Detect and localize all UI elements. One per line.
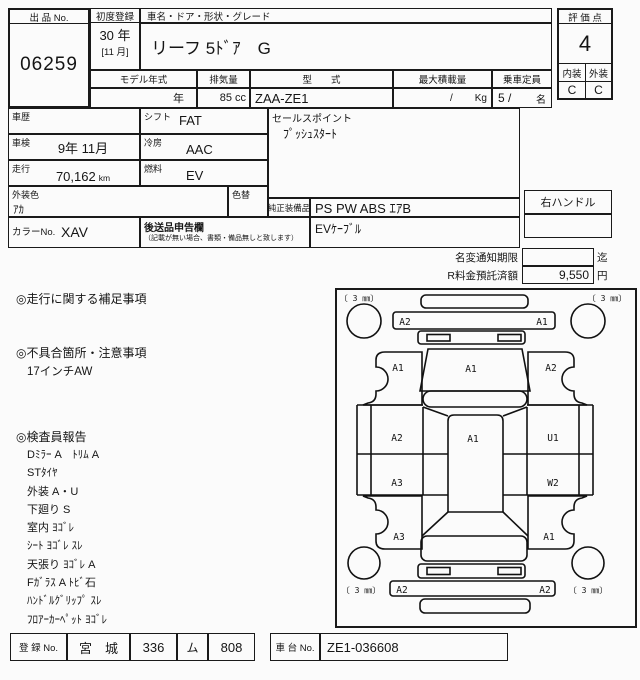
equipment2-value: EVｹｰﾌﾞﾙ	[310, 217, 520, 248]
fender-front-right-mark: A2	[545, 363, 556, 374]
first-registration-box: 初度登録 30 年 [11 月]	[90, 8, 140, 70]
displacement-value: 85 cc	[197, 88, 250, 108]
lot-number: 06259	[10, 24, 88, 106]
fuel-label: 燃料	[144, 162, 162, 175]
inspector-line: 下廻り S	[27, 501, 327, 519]
ac-cell: 冷房 AAC	[140, 134, 268, 160]
inspector-line: 天張り ﾖｺﾞﾚ A	[27, 556, 327, 574]
later-items-cell: 後送品申告欄 （記載が無い場合、書類・備品無しと致します）	[140, 217, 310, 248]
damage-diagram: 〔 3 ㎜〕 〔 3 ㎜〕 〔 3 ㎜〕 〔 3 ㎜〕 A2 A1 A1 A1	[335, 288, 637, 628]
rear-bumper-right-mark: A2	[539, 585, 550, 596]
damage-diagram-svg: 〔 3 ㎜〕 〔 3 ㎜〕 〔 3 ㎜〕 〔 3 ㎜〕 A2 A1 A1 A1	[337, 290, 635, 626]
mileage-value: 70,162	[56, 169, 96, 184]
fender-rear-right-mark: A1	[543, 532, 555, 543]
shift-cell: シフト FAT	[140, 108, 268, 134]
capacity-unit: 名	[536, 91, 546, 106]
headlight-left	[427, 335, 450, 342]
inspector-line: 外装 A・U	[27, 483, 327, 501]
rear-hatch-pillars	[422, 512, 528, 536]
max-load-label: 最大積載量	[393, 70, 492, 88]
tail-light-strip	[418, 564, 525, 578]
color-change-cell: 色替	[228, 186, 268, 217]
model-code-label: 型 式	[250, 70, 393, 88]
name-change-value-box	[522, 248, 594, 266]
defects-title: ◎不具合箇所・注意事項	[16, 344, 146, 361]
fender-rear-right	[528, 496, 587, 549]
interior-grade: C	[559, 82, 586, 98]
name-change-suffix: 迄	[597, 250, 608, 265]
wheel-front-left	[347, 304, 381, 338]
inspector-title: ◎検査員報告	[16, 428, 86, 445]
score-value: 4	[559, 24, 611, 64]
fender-rear-left-mark: A3	[393, 532, 404, 543]
defect-item: 17インチAW	[27, 363, 92, 379]
wheel-rear-right	[572, 547, 604, 579]
shift-value: FAT	[179, 113, 202, 128]
front-bumper-left-mark: A2	[399, 317, 410, 328]
inspector-line: 室内 ﾖｺﾞﾚ	[27, 519, 327, 537]
roof-panel	[448, 415, 503, 512]
inspection-cell: 車検 9年 11月	[8, 134, 140, 160]
sales-point-label: セールスポイント	[272, 110, 352, 125]
interior-label: 内装	[559, 64, 586, 82]
registration-class: 336	[130, 633, 177, 661]
color-no-value: XAV	[61, 224, 88, 240]
lot-number-box: 出 品 No. 06259	[8, 8, 90, 108]
tire-mark-rear-left: 〔 3 ㎜〕	[342, 586, 380, 595]
door-left-rear-mark: A3	[391, 478, 402, 489]
inspector-line: STﾀｲﾔ	[27, 464, 327, 482]
first-registration-label: 初度登録	[91, 9, 139, 23]
later-items-note: （記載が無い場合、書類・備品無しと致します）	[144, 233, 298, 243]
fuel-value: EV	[186, 168, 203, 183]
hood-mark: A1	[465, 364, 477, 375]
recycle-fee-value-box: 9,550	[522, 266, 594, 284]
color-no-label: カラーNo.	[12, 224, 55, 238]
registration-number: 808	[208, 633, 255, 661]
score-box: 評 価 点 4 内装 外装 C C	[557, 8, 613, 100]
shift-label: シフト	[144, 110, 171, 123]
fender-front-left	[363, 352, 422, 405]
recycle-fee-suffix: 円	[597, 268, 608, 283]
exterior-label: 外装	[586, 64, 611, 82]
front-bumper-top-strip	[421, 295, 528, 308]
model-year-value: 年	[90, 88, 197, 108]
front-bumper-right-mark: A1	[536, 317, 548, 328]
wheel-front-right	[571, 304, 605, 338]
history-cell: 車歴	[8, 108, 140, 134]
color-no-cell: カラーNo. XAV	[8, 217, 140, 248]
car-name: リーフ 5ﾄﾞｱ G	[140, 23, 552, 70]
model-year-label: モデル年式	[90, 70, 197, 88]
max-load-unit: Kg	[475, 93, 487, 104]
car-name-header: 車名・ドア・形状・グレード	[140, 8, 552, 23]
mileage-cell: 走行 70,162 km	[8, 160, 140, 186]
max-load-slash: /	[450, 93, 453, 104]
first-registration-month: [11 月]	[91, 44, 139, 58]
inspector-line: ﾌﾛｱｰｶｰﾍﾟｯﾄ ﾖｺﾞﾚ	[27, 611, 327, 629]
chassis-label: 車 台 No.	[270, 633, 320, 661]
door-right-rear-mark: W2	[547, 478, 558, 489]
color-change-label: 色替	[232, 188, 250, 201]
later-items-label: 後送品申告欄	[144, 219, 204, 234]
registration-label: 登 録 No.	[10, 633, 67, 661]
exterior-grade: C	[586, 82, 611, 98]
tail-light-right	[498, 568, 521, 575]
registration-kana: ム	[177, 633, 208, 661]
windshield	[423, 391, 527, 407]
equipment-label: 純正装備品	[268, 198, 310, 217]
name-change-label: 名変通知期限	[370, 250, 518, 266]
history-value	[9, 109, 139, 133]
model-code: ZAA-ZE1	[250, 88, 393, 108]
fuel-cell: 燃料 EV	[140, 160, 268, 186]
chassis-number: ZE1-036608	[320, 633, 508, 661]
mileage-notes-title: ◎走行に関する補足事項	[16, 290, 146, 307]
inspector-line: Fｶﾞﾗｽ A ﾄﾋﾞ石	[27, 574, 327, 592]
ac-value: AAC	[186, 142, 213, 157]
door-left-front-mark: A2	[391, 433, 402, 444]
registration-area: 宮 城	[67, 633, 130, 661]
score-label: 評 価 点	[559, 10, 611, 24]
wheel-rear-left	[348, 547, 380, 579]
door-right-front-mark: U1	[547, 433, 559, 444]
inspector-line: Dﾐﾗｰ A ﾄﾘﾑ A	[27, 446, 327, 464]
rear-panel	[421, 536, 527, 561]
rear-bumper-bottom-strip	[420, 599, 530, 613]
headlight-right	[498, 335, 521, 342]
mileage-unit: km	[99, 173, 110, 183]
tail-light-left	[427, 568, 450, 575]
fender-front-right	[528, 352, 587, 405]
equipment-value: PS PW ABS ｴｱB	[310, 198, 520, 217]
tire-mark-front-left: 〔 3 ㎜〕	[340, 294, 378, 303]
steering-cell: 右ハンドル	[524, 190, 612, 214]
recycle-fee-label: R料金預託済額	[370, 268, 518, 284]
inspector-line: ｼｰﾄ ﾖｺﾞﾚ ｽﾚ	[27, 537, 327, 555]
ac-label: 冷房	[144, 136, 162, 149]
tire-mark-front-right: 〔 3 ㎜〕	[588, 294, 626, 303]
exterior-color-value: ｱｶ	[13, 201, 24, 217]
rear-bumper-left-mark: A2	[396, 585, 407, 596]
capacity-value: 5 /	[498, 91, 511, 105]
exterior-color-cell: 外装色 ｱｶ	[8, 186, 228, 217]
exterior-color-label: 外装色	[12, 188, 39, 201]
rear-bumper-bar	[390, 581, 555, 596]
auction-sheet: 出 品 No. 06259 初度登録 30 年 [11 月] 車名・ドア・形状・…	[0, 0, 640, 680]
first-registration-year: 30 年	[91, 25, 139, 44]
tire-mark-rear-right: 〔 3 ㎜〕	[569, 586, 607, 595]
sales-point-value: ﾌﾟｯｼｭｽﾀｰﾄ	[283, 125, 337, 142]
roof-mark: A1	[467, 434, 479, 445]
lot-number-label: 出 品 No.	[10, 10, 88, 24]
front-bumper-bar	[393, 312, 555, 329]
capacity-label: 乗車定員	[492, 70, 552, 88]
fender-front-left-mark: A1	[392, 363, 404, 374]
inspection-value: 9年 11月	[9, 135, 139, 159]
sales-point-box: セールスポイント ﾌﾟｯｼｭｽﾀｰﾄ	[268, 108, 520, 198]
displacement-label: 排気量	[197, 70, 250, 88]
inspector-report: Dﾐﾗｰ A ﾄﾘﾑ A STﾀｲﾔ 外装 A・U 下廻り S 室内 ﾖｺﾞﾚ …	[27, 446, 327, 629]
inspector-line: ﾊﾝﾄﾞﾙｸﾞﾘｯﾌﾟ ｽﾚ	[27, 592, 327, 610]
front-grille-strip	[418, 331, 525, 344]
steering-empty-cell	[524, 214, 612, 238]
